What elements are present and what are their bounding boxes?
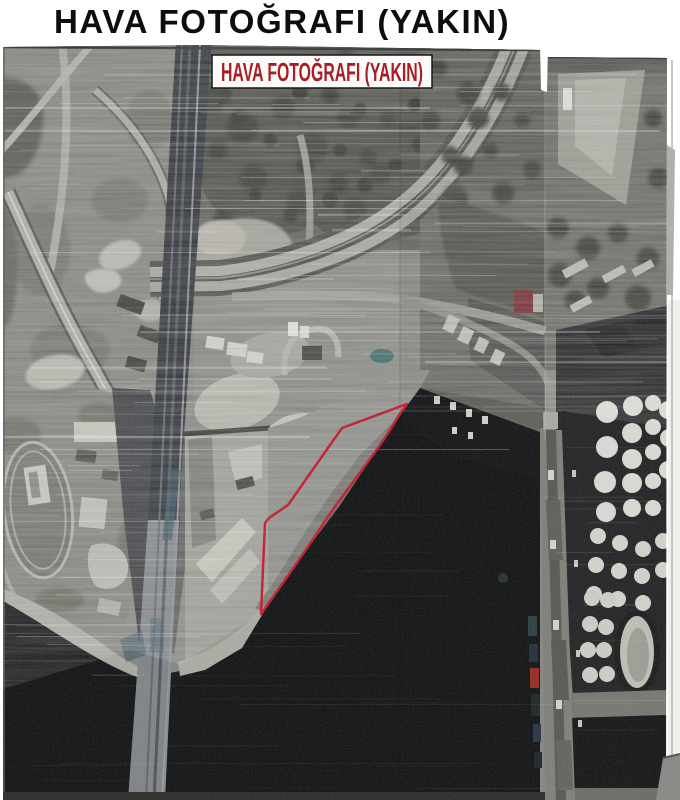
svg-text:HAVA FOTOĞRAFI (YAKIN): HAVA FOTOĞRAFI (YAKIN) <box>54 3 510 40</box>
svg-text:HAVA FOTOĞRAFI (YAKIN): HAVA FOTOĞRAFI (YAKIN) <box>221 57 423 87</box>
